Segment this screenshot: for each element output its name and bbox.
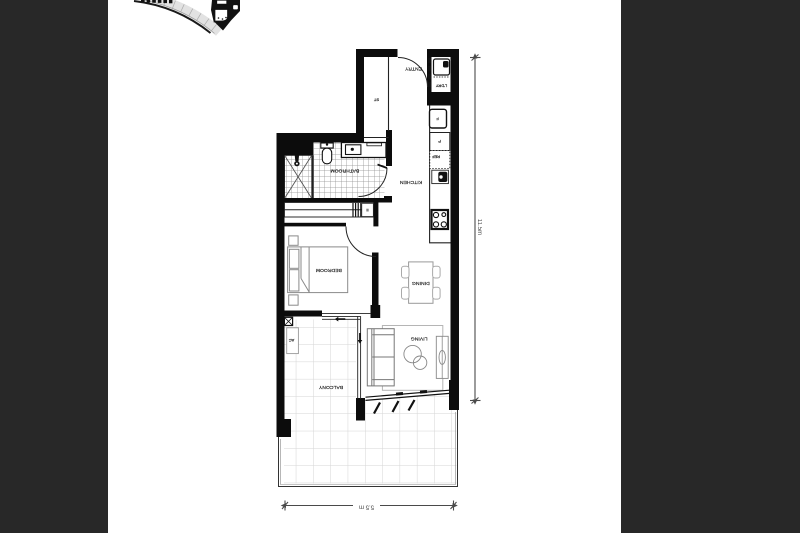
svg-text:5.5 m: 5.5 m: [359, 504, 374, 510]
svg-text:LIVING: LIVING: [411, 335, 428, 341]
svg-text:11.5m: 11.5m: [476, 219, 482, 235]
svg-text:ST: ST: [373, 98, 379, 103]
svg-text:AC: AC: [289, 338, 295, 343]
svg-text:KITCHEN: KITCHEN: [400, 179, 423, 185]
svg-text:BATHROOM: BATHROOM: [330, 167, 359, 173]
svg-text:BALCONY: BALCONY: [318, 384, 343, 390]
svg-text:REF: REF: [431, 155, 440, 160]
svg-text:P: P: [438, 139, 441, 144]
svg-text:L'DRY: L'DRY: [435, 84, 447, 89]
svg-text:ENTRY: ENTRY: [404, 66, 422, 72]
svg-text:DINING: DINING: [412, 280, 430, 286]
svg-text:BEDROOM: BEDROOM: [316, 267, 342, 273]
